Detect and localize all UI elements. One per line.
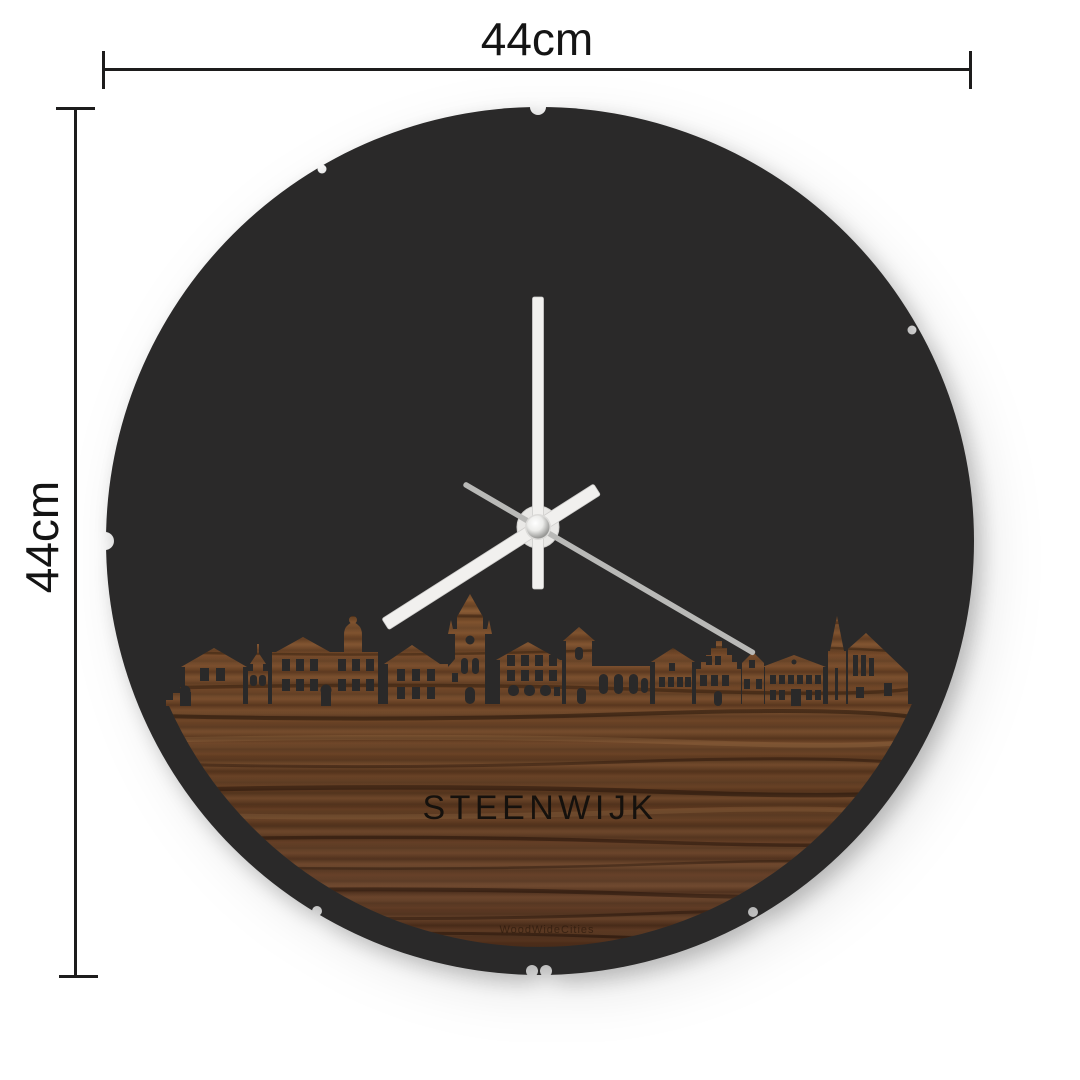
city-name-text: STEENWIJK [422,789,657,827]
skyline-wall-clock: STEENWIJK WoodWideCities [0,0,1080,1080]
minute-hand [533,297,544,589]
product-dimension-diagram: 44cm 44cm [0,0,1080,1080]
clock-hub-ball [527,516,550,539]
brand-watermark-text: WoodWideCities [499,924,594,936]
